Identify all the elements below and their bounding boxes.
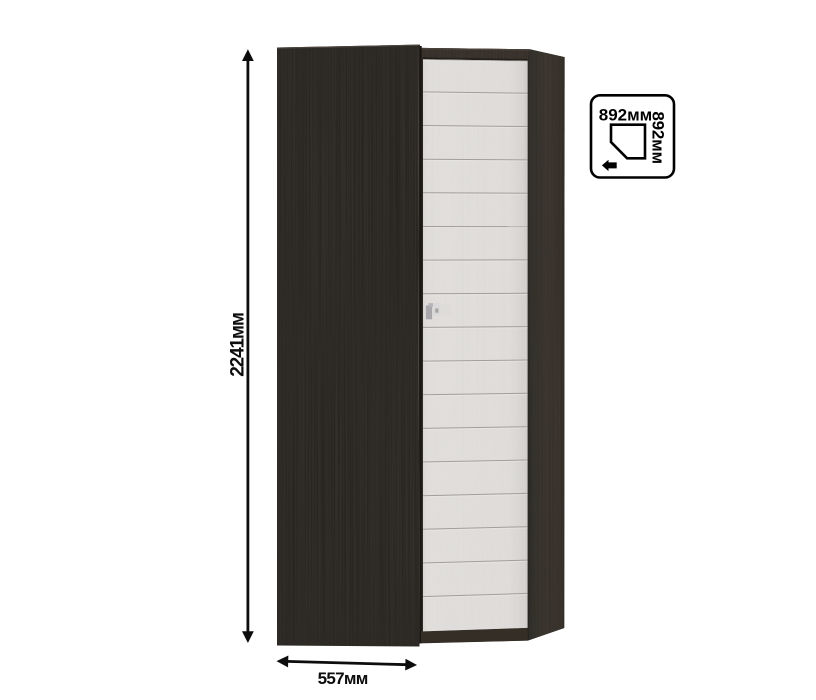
- svg-text:2241мм: 2241мм: [228, 313, 249, 377]
- svg-text:892мм: 892мм: [648, 111, 667, 164]
- svg-text:892мм: 892мм: [599, 106, 653, 125]
- svg-text:557мм: 557мм: [318, 669, 368, 688]
